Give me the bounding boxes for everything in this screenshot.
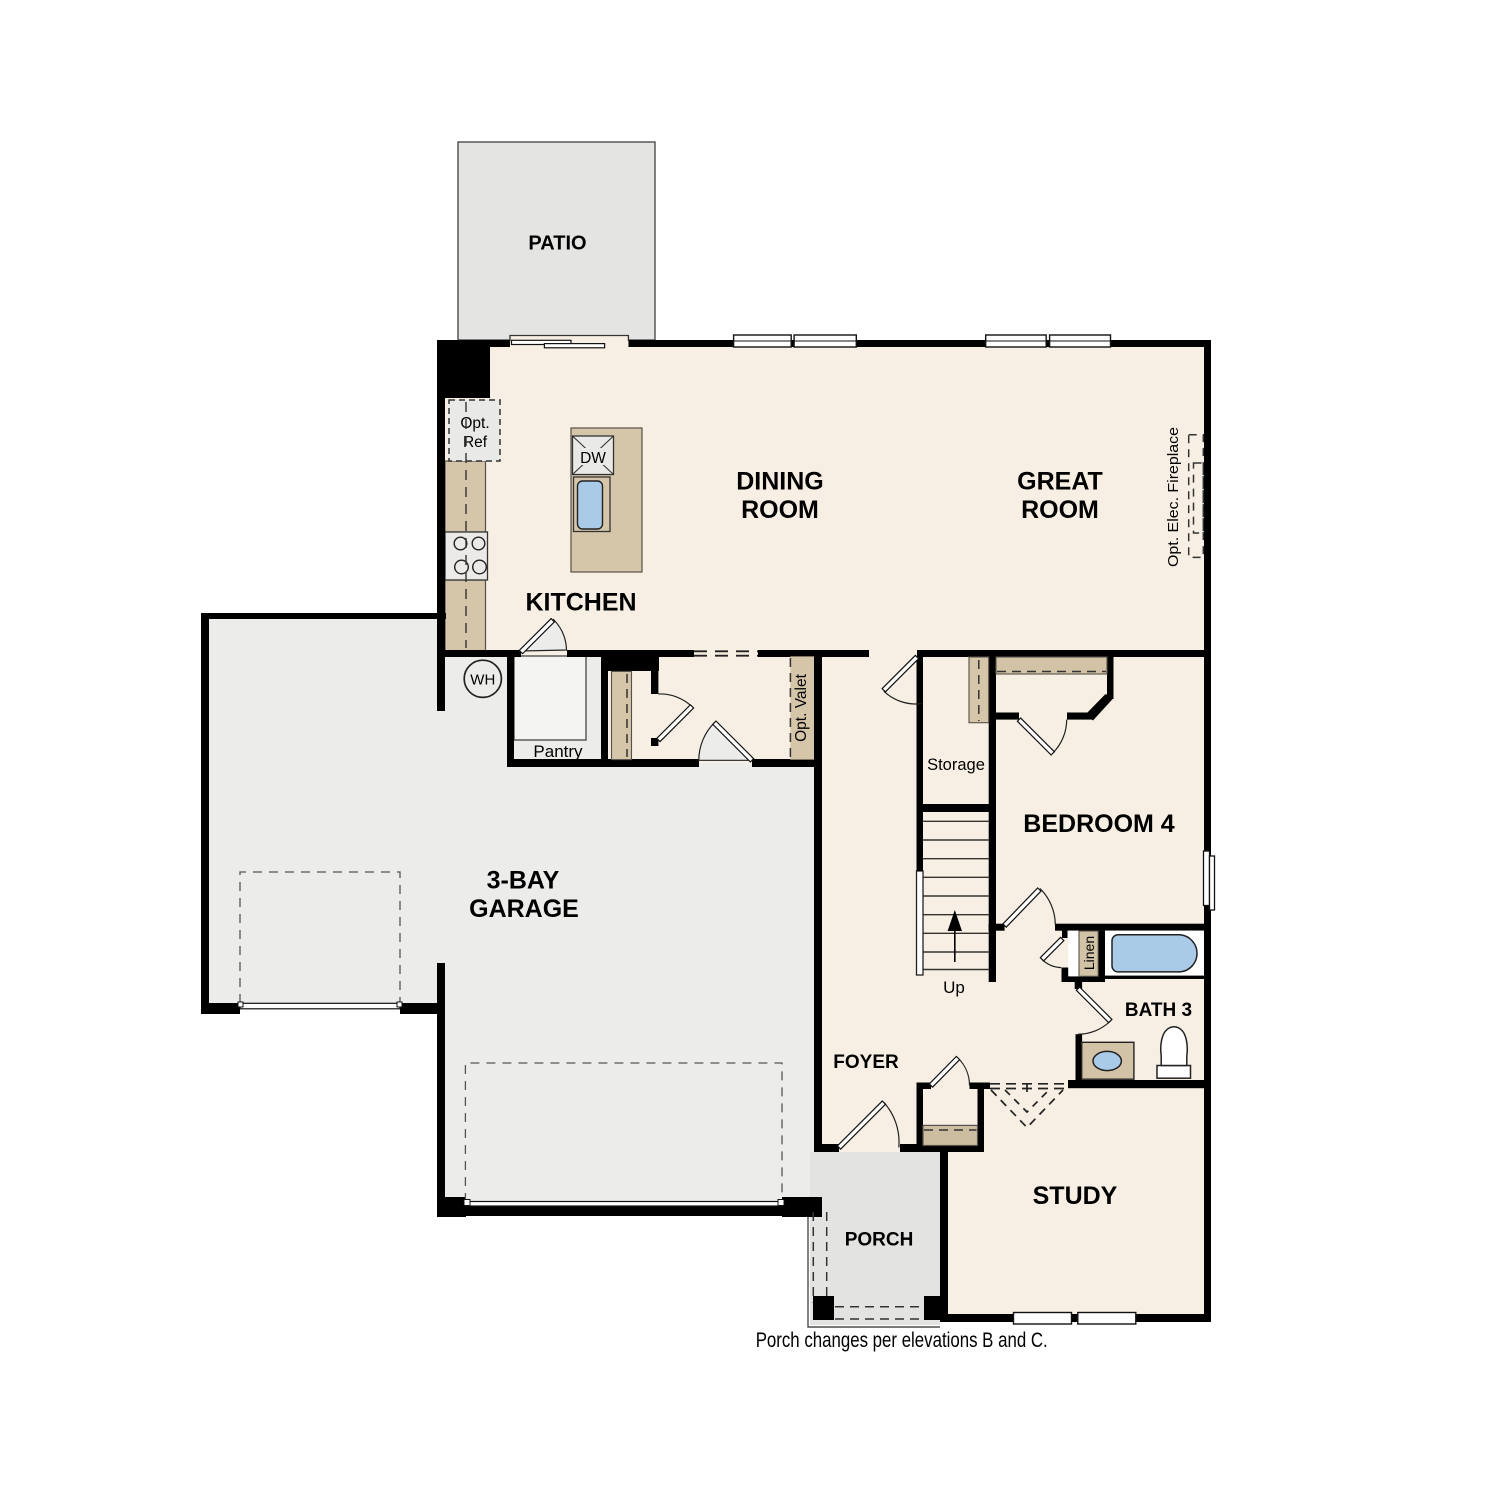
svg-text:Opt. Valet: Opt. Valet — [793, 673, 810, 741]
svg-text:FOYER: FOYER — [833, 1052, 899, 1073]
svg-text:DINING: DINING — [736, 468, 824, 496]
svg-text:Up: Up — [943, 978, 965, 997]
svg-text:DW: DW — [580, 450, 606, 467]
svg-text:GREAT: GREAT — [1017, 468, 1103, 496]
svg-text:Opt.: Opt. — [460, 415, 489, 432]
svg-text:WH: WH — [470, 672, 495, 689]
svg-text:ROOM: ROOM — [741, 496, 819, 524]
svg-text:PORCH: PORCH — [845, 1230, 914, 1251]
svg-text:STUDY: STUDY — [1033, 1182, 1118, 1210]
svg-text:GARAGE: GARAGE — [469, 895, 579, 923]
svg-text:ROOM: ROOM — [1021, 496, 1099, 524]
svg-text:3-BAY: 3-BAY — [487, 867, 560, 895]
svg-text:BEDROOM 4: BEDROOM 4 — [1023, 810, 1175, 838]
svg-text:Storage: Storage — [927, 756, 985, 774]
svg-text:KITCHEN: KITCHEN — [525, 589, 636, 617]
svg-text:BATH 3: BATH 3 — [1125, 1000, 1192, 1021]
svg-text:Opt. Elec. Fireplace: Opt. Elec. Fireplace — [1165, 427, 1182, 567]
svg-text:Linen: Linen — [1081, 936, 1097, 970]
svg-text:PATIO: PATIO — [528, 233, 586, 255]
svg-text:Pantry: Pantry — [533, 742, 583, 761]
svg-text:Porch changes per elevations B: Porch changes per elevations B and C. — [756, 1329, 1048, 1352]
